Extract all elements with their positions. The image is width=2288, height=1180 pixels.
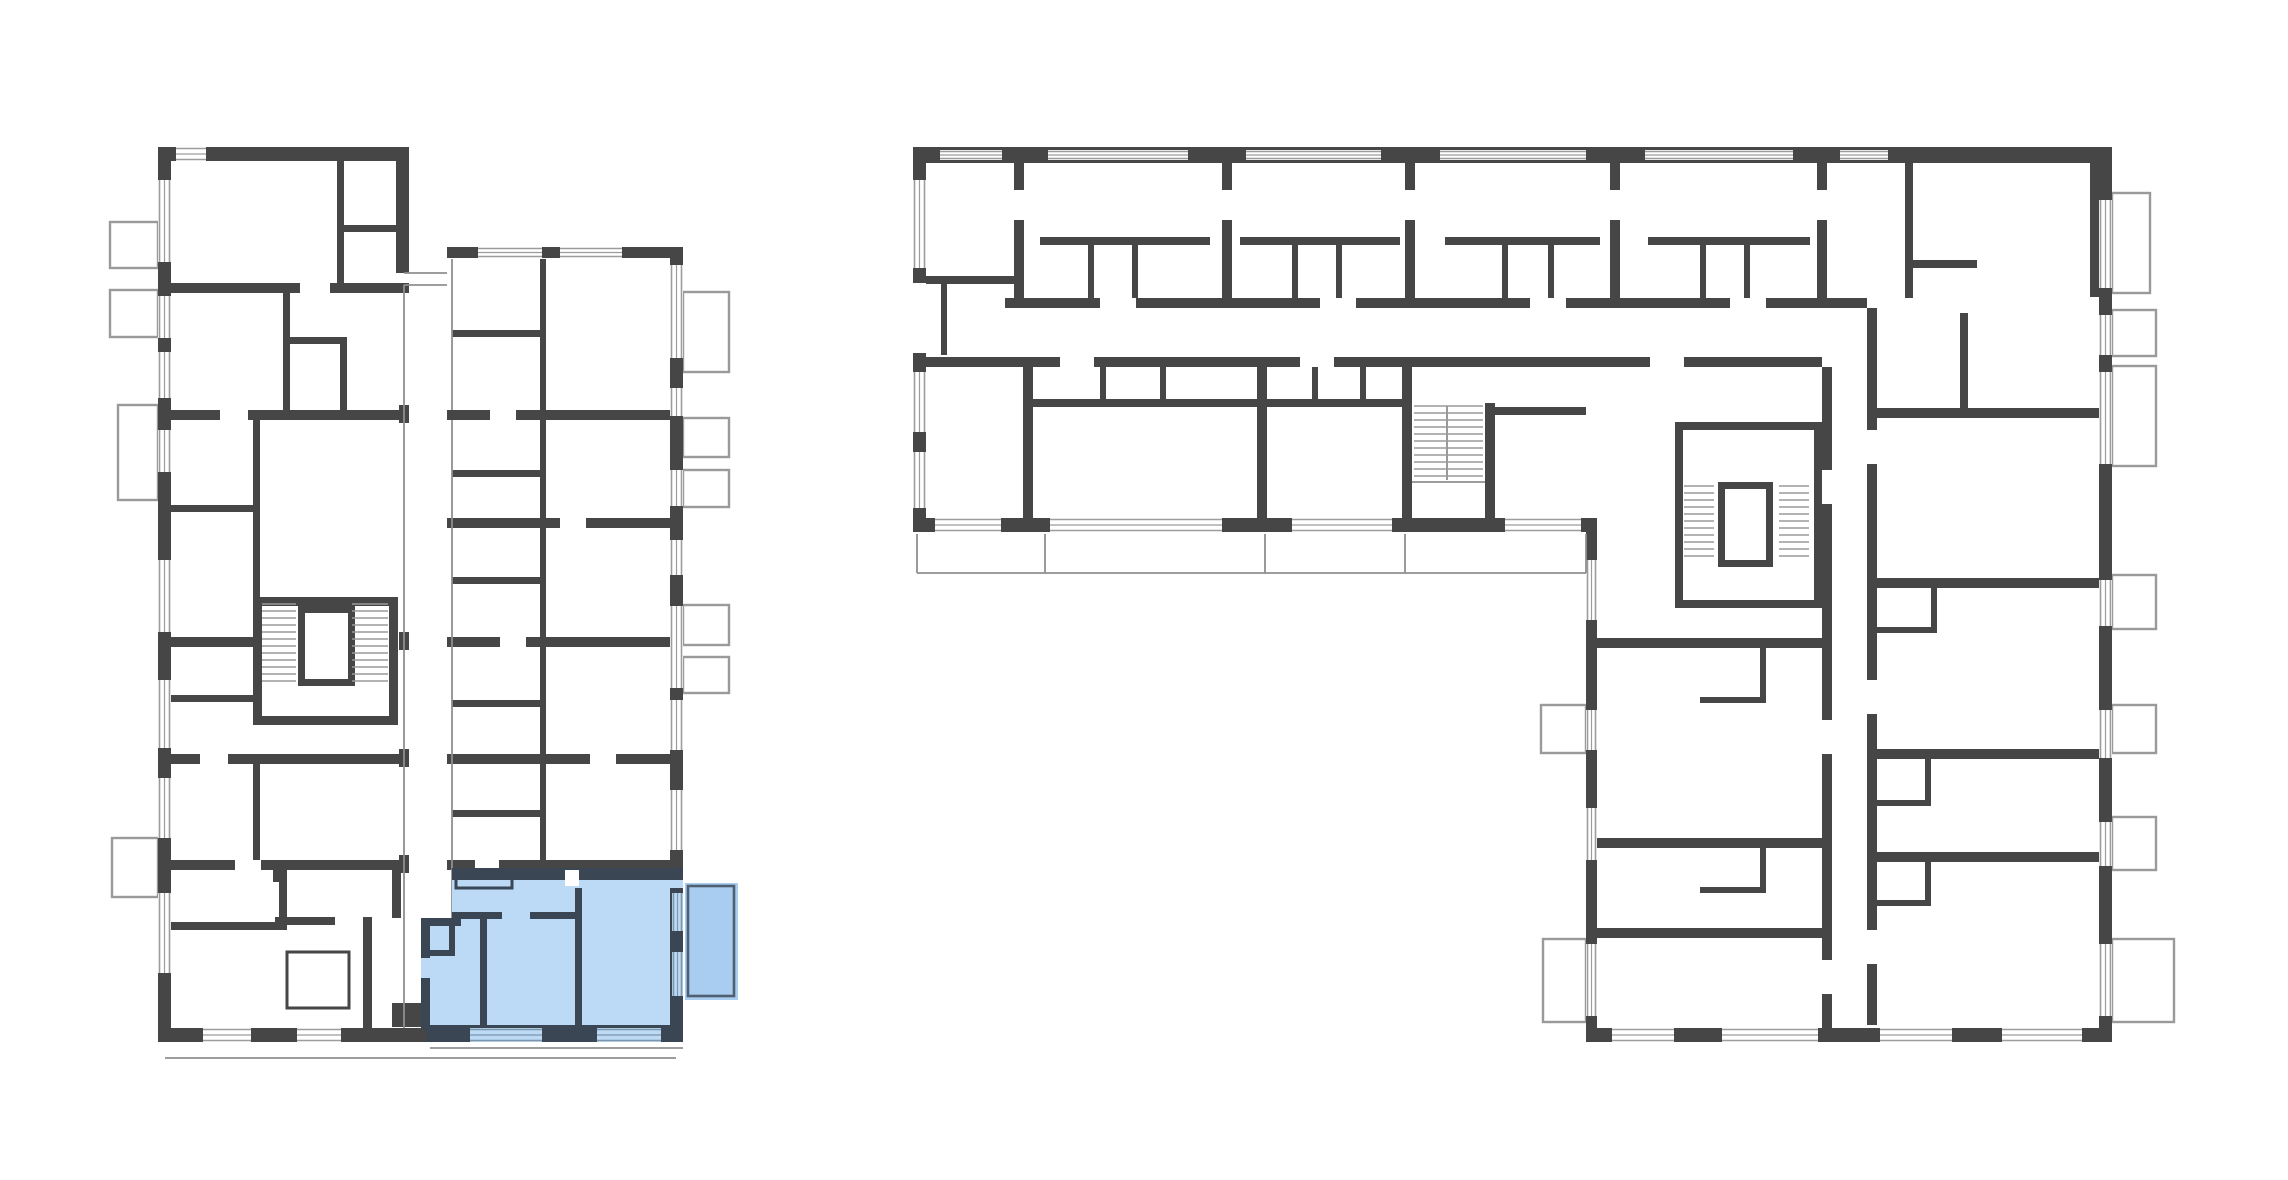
- floor-plans-svg: [0, 0, 2288, 1180]
- selected-apartment-unit[interactable]: [421, 868, 738, 1042]
- right-building-plan: [913, 147, 2174, 1042]
- floor-plan-page: [0, 0, 2288, 1180]
